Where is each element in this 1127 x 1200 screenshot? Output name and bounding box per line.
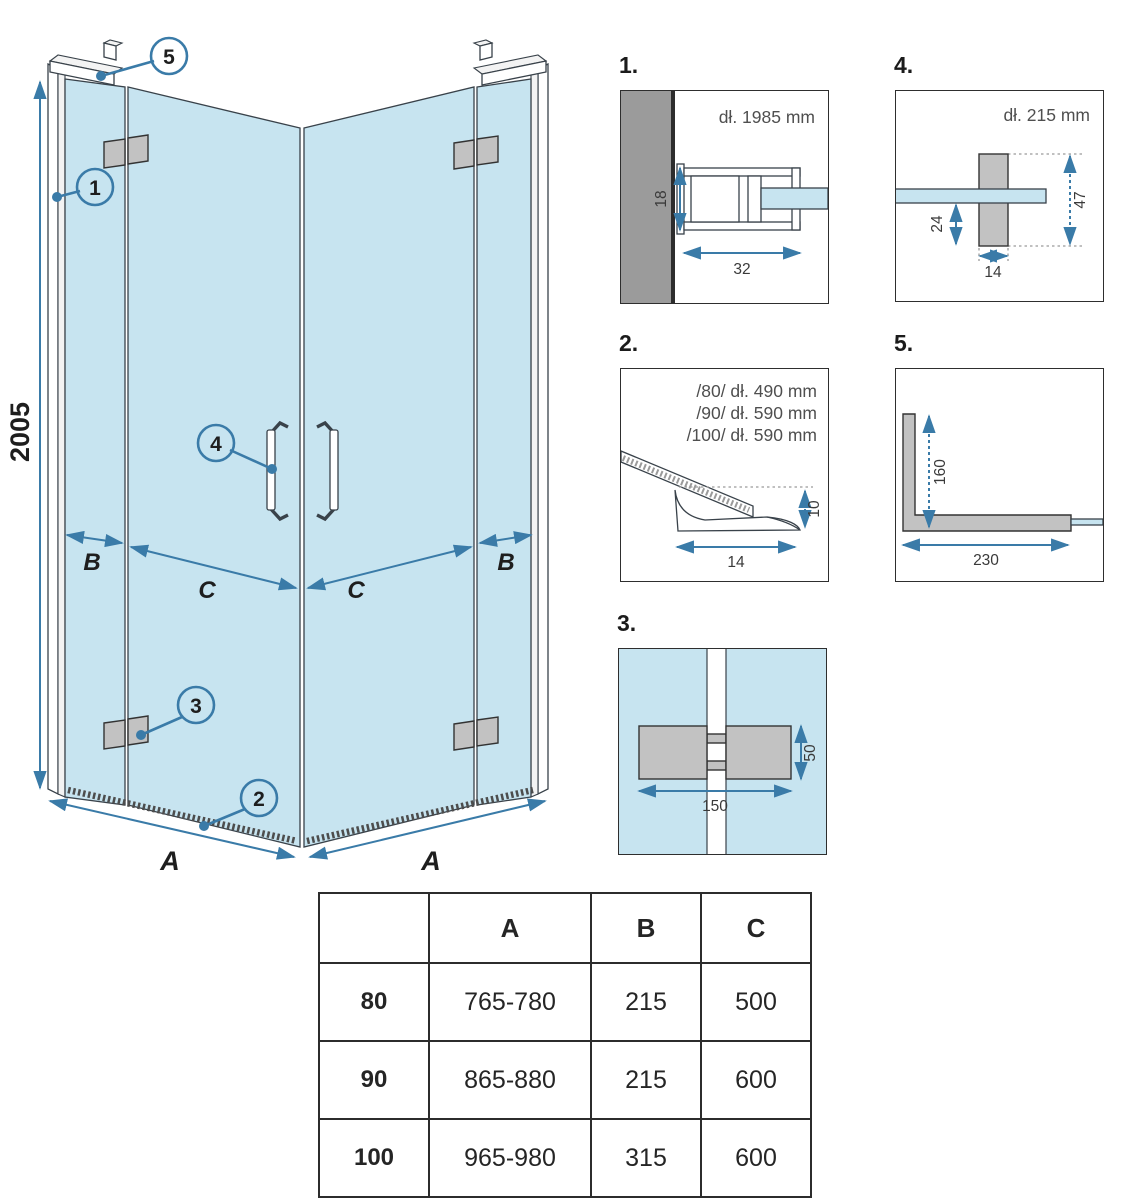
detail-4-dim-14: 14 xyxy=(984,264,1002,281)
svg-text:A: A xyxy=(420,846,441,876)
svg-text:A: A xyxy=(159,846,180,876)
detail-2-bottom-seal: /80/ dł. 490 mm /90/ dł. 590 mm /100/ dł… xyxy=(620,368,829,582)
table-cell: 315 xyxy=(591,1119,701,1197)
detail-1-wall-profile: dł. 1985 mm 18 32 xyxy=(620,90,829,304)
detail-3-dim-50: 50 xyxy=(802,744,819,762)
detail-2-dim-14: 14 xyxy=(727,554,745,571)
door-gap xyxy=(707,649,726,854)
detail-3-hinge: 50 150 xyxy=(618,648,827,855)
detail-1-dim-18: 18 xyxy=(653,190,670,207)
table-cell: 90 xyxy=(319,1041,429,1119)
table-cell: 600 xyxy=(701,1119,811,1197)
svg-text:2: 2 xyxy=(253,788,265,811)
height-dimension-label: 2005 xyxy=(5,402,35,462)
table-cell: 215 xyxy=(591,963,701,1041)
table-row: 100 965-980 315 600 xyxy=(319,1119,811,1197)
detail-4-dim-47: 47 xyxy=(1072,191,1089,208)
detail-2-label: 2. xyxy=(619,330,638,357)
glass-panel-fixed-right xyxy=(477,79,531,805)
table-cell: 80 xyxy=(319,963,429,1041)
glass-strip xyxy=(895,189,1046,203)
detail-1-length-note: dł. 1985 mm xyxy=(719,107,815,127)
detail-5-support-bracket: 160 230 xyxy=(895,368,1104,582)
size-table: A B C 80 765-780 215 500 90 865-880 215 … xyxy=(318,892,812,1198)
detail-5-dim-160: 160 xyxy=(932,459,949,485)
svg-text:B: B xyxy=(83,549,100,576)
table-header-blank xyxy=(319,893,429,963)
svg-text:C: C xyxy=(347,577,365,604)
wall-profile-section xyxy=(677,164,828,234)
svg-text:4: 4 xyxy=(210,433,222,456)
wall-profile-left xyxy=(48,64,65,797)
svg-text:5: 5 xyxy=(163,46,175,69)
seal-profile-section xyxy=(621,451,800,531)
table-cell: 965-980 xyxy=(429,1119,591,1197)
table-header-b: B xyxy=(591,893,701,963)
glass-section xyxy=(761,188,828,209)
technical-drawing-page: 2005 xyxy=(0,0,1127,1200)
table-row: 80 765-780 215 500 xyxy=(319,963,811,1041)
detail-1-label: 1. xyxy=(619,52,638,79)
shower-enclosure-diagram: 2005 xyxy=(0,0,570,880)
detail-2-note-80: /80/ dł. 490 mm xyxy=(696,381,817,401)
detail-3-label: 3. xyxy=(617,610,636,637)
detail-4-length-note: dł. 215 mm xyxy=(1003,105,1090,125)
detail-2-note-100: /100/ dł. 590 mm xyxy=(687,425,817,445)
wall-profile-right xyxy=(531,64,548,797)
glass-edge xyxy=(1071,519,1103,525)
table-cell: 600 xyxy=(701,1041,811,1119)
detail-2-dim-10: 10 xyxy=(806,500,823,518)
table-header-row: A B C xyxy=(319,893,811,963)
table-row: 90 865-880 215 600 xyxy=(319,1041,811,1119)
svg-text:B: B xyxy=(497,549,514,576)
detail-3-dim-150: 150 xyxy=(702,798,728,815)
table-header-c: C xyxy=(701,893,811,963)
detail-4-glass-clamp: dł. 215 mm 47 24 14 xyxy=(895,90,1104,302)
table-cell: 765-780 xyxy=(429,963,591,1041)
svg-text:C: C xyxy=(198,577,216,604)
table-cell: 865-880 xyxy=(429,1041,591,1119)
table-cell: 500 xyxy=(701,963,811,1041)
detail-4-dim-24: 24 xyxy=(929,215,946,233)
detail-5-dim-230: 230 xyxy=(973,552,999,569)
svg-text:1: 1 xyxy=(89,177,101,200)
height-dimension: 2005 xyxy=(5,82,40,788)
detail-5-label: 5. xyxy=(894,330,913,357)
detail-1-dim-32: 32 xyxy=(733,261,750,278)
detail-4-label: 4. xyxy=(894,52,913,79)
table-cell: 215 xyxy=(591,1041,701,1119)
svg-text:3: 3 xyxy=(190,695,202,718)
detail-2-note-90: /90/ dł. 590 mm xyxy=(696,403,817,423)
table-header-a: A xyxy=(429,893,591,963)
table-cell: 100 xyxy=(319,1119,429,1197)
